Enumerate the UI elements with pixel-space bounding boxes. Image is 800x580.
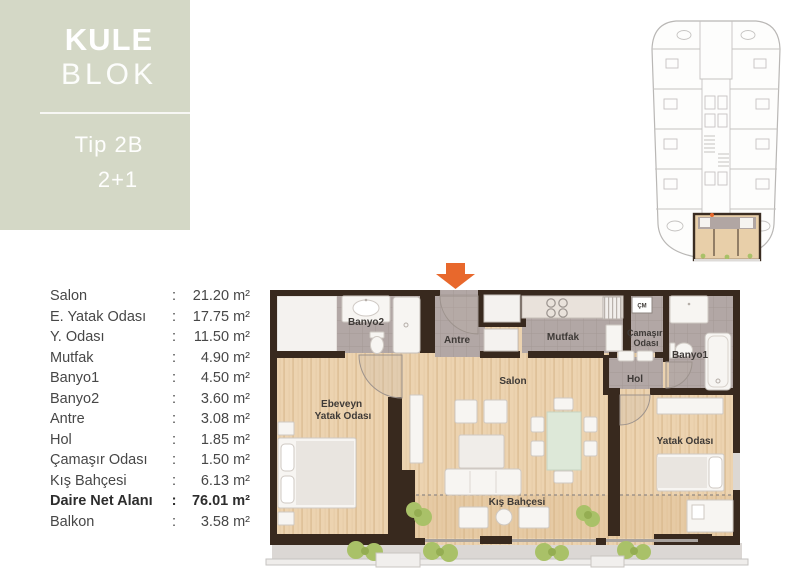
area-row-balkon: Balkon:3.58 m² xyxy=(50,512,250,533)
room-label-mutfak: Mutfak xyxy=(547,332,580,343)
balcony-divider-box xyxy=(376,553,420,567)
room-name: Hol xyxy=(50,430,166,451)
key-plan xyxy=(642,4,794,266)
room-name: Banyo2 xyxy=(50,389,166,410)
room-area: 17.75 m² xyxy=(182,307,250,328)
area-table: Salon:21.20 m² E. Yatak Odası:17.75 m² Y… xyxy=(50,286,250,532)
room-name: Çamaşır Odası xyxy=(50,450,166,471)
room-area: 6.13 m² xyxy=(182,471,250,492)
room-label-hol: Hol xyxy=(627,374,643,385)
area-row-mutfak: Mutfak:4.90 m² xyxy=(50,348,250,369)
room-name: Banyo1 xyxy=(50,368,166,389)
room-area: 3.58 m² xyxy=(182,512,250,533)
room-label-kis-bahcesi: Kış Bahçesi xyxy=(489,497,546,508)
area-row-salon: Salon:21.20 m² xyxy=(50,286,250,307)
unit-type: Tip 2B xyxy=(0,132,190,158)
room-area: 4.90 m² xyxy=(182,348,250,369)
room-label-banyo2: Banyo2 xyxy=(348,317,385,328)
closet-room-floor xyxy=(277,296,337,353)
room-name: Mutfak xyxy=(50,348,166,369)
total-area: 76.01 m² xyxy=(182,491,250,512)
area-row-net-total: Daire Net Alanı:76.01 m² xyxy=(50,491,250,512)
brand-title: KULE xyxy=(0,22,190,58)
room-label-ebeveyn: Ebeveyn Yatak Odası xyxy=(315,399,372,422)
balcony-divider-box xyxy=(591,556,624,567)
entrance-arrow-icon xyxy=(436,263,475,289)
area-row-hol: Hol:1.85 m² xyxy=(50,430,250,451)
area-row-banyo2: Banyo2:3.60 m² xyxy=(50,389,250,410)
area-row-camasir: Çamaşır Odası:1.50 m² xyxy=(50,450,250,471)
room-name: Salon xyxy=(50,286,166,307)
washing-machine-label: ÇM xyxy=(637,304,646,310)
room-area: 11.50 m² xyxy=(182,327,250,348)
winter-garden-furniture xyxy=(459,507,549,528)
room-label-yatak: Yatak Odası xyxy=(657,436,714,447)
room-name: Kış Bahçesi xyxy=(50,471,166,492)
area-row-kis-bahcesi: Kış Bahçesi:6.13 m² xyxy=(50,471,250,492)
balcony xyxy=(266,543,748,565)
unit-layout: 2+1 xyxy=(0,167,190,193)
room-name: Y. Odası xyxy=(50,327,166,348)
room-name: Antre xyxy=(50,409,166,430)
key-plan-highlighted-unit xyxy=(694,213,760,262)
room-label-salon: Salon xyxy=(499,376,526,387)
room-label-banyo1: Banyo1 xyxy=(672,350,709,361)
wall-niche xyxy=(484,295,520,322)
room-area: 3.08 m² xyxy=(182,409,250,430)
room-area: 3.60 m² xyxy=(182,389,250,410)
room-area: 1.85 m² xyxy=(182,430,250,451)
brand-subtitle: BLOK xyxy=(0,58,190,92)
area-row-banyo1: Banyo1:4.50 m² xyxy=(50,368,250,389)
room-area: 4.50 m² xyxy=(182,368,250,389)
key-plan-entrance-dot xyxy=(710,213,714,217)
room-name: E. Yatak Odası xyxy=(50,307,166,328)
room-area: 21.20 m² xyxy=(182,286,250,307)
total-label: Daire Net Alanı xyxy=(50,491,166,512)
panel-divider xyxy=(40,112,190,114)
brand-panel: KULE BLOK Tip 2B 2+1 xyxy=(0,0,190,230)
room-label-antre: Antre xyxy=(444,335,471,346)
room-area: 1.50 m² xyxy=(182,450,250,471)
area-row-y-odasi: Y. Odası:11.50 m² xyxy=(50,327,250,348)
floor-plan: ÇM xyxy=(258,255,750,575)
storage-box xyxy=(484,329,518,351)
area-row-antre: Antre:3.08 m² xyxy=(50,409,250,430)
right-wall-window xyxy=(733,453,740,490)
room-name: Balkon xyxy=(50,512,166,533)
area-row-e-yatak: E. Yatak Odası:17.75 m² xyxy=(50,307,250,328)
